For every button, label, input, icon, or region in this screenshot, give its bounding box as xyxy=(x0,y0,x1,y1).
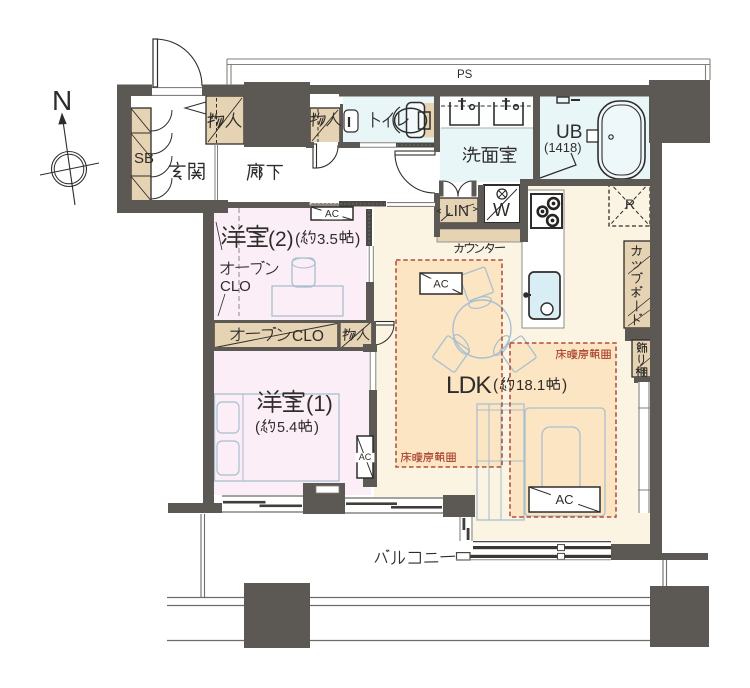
svg-text:AC: AC xyxy=(359,452,372,462)
svg-text:SB: SB xyxy=(134,150,154,167)
svg-text:3.5: 3.5 xyxy=(317,231,338,248)
svg-text:CLO: CLO xyxy=(220,278,251,295)
svg-text:N: N xyxy=(52,85,72,116)
svg-text:AC: AC xyxy=(433,278,448,290)
svg-text:(: ( xyxy=(493,377,499,394)
svg-text:): ) xyxy=(562,377,567,394)
svg-text:LDK: LDK xyxy=(446,372,492,399)
svg-text:CLO: CLO xyxy=(292,328,324,345)
svg-text:(: ( xyxy=(295,231,301,248)
svg-text:LIN: LIN xyxy=(445,203,469,220)
svg-text:W: W xyxy=(493,200,510,220)
svg-text:(: ( xyxy=(255,419,260,436)
svg-text:(1418): (1418) xyxy=(544,140,582,155)
svg-text:(1): (1) xyxy=(306,391,333,416)
svg-text:AC: AC xyxy=(555,492,573,507)
svg-text:18.1: 18.1 xyxy=(516,377,545,394)
svg-text:): ) xyxy=(314,419,319,436)
svg-text:): ) xyxy=(355,231,360,248)
svg-text:R: R xyxy=(625,196,635,212)
svg-text:(2): (2) xyxy=(268,228,294,251)
svg-text:5.4: 5.4 xyxy=(277,420,297,436)
svg-text:AC: AC xyxy=(325,209,339,220)
svg-text:PS: PS xyxy=(457,69,473,81)
